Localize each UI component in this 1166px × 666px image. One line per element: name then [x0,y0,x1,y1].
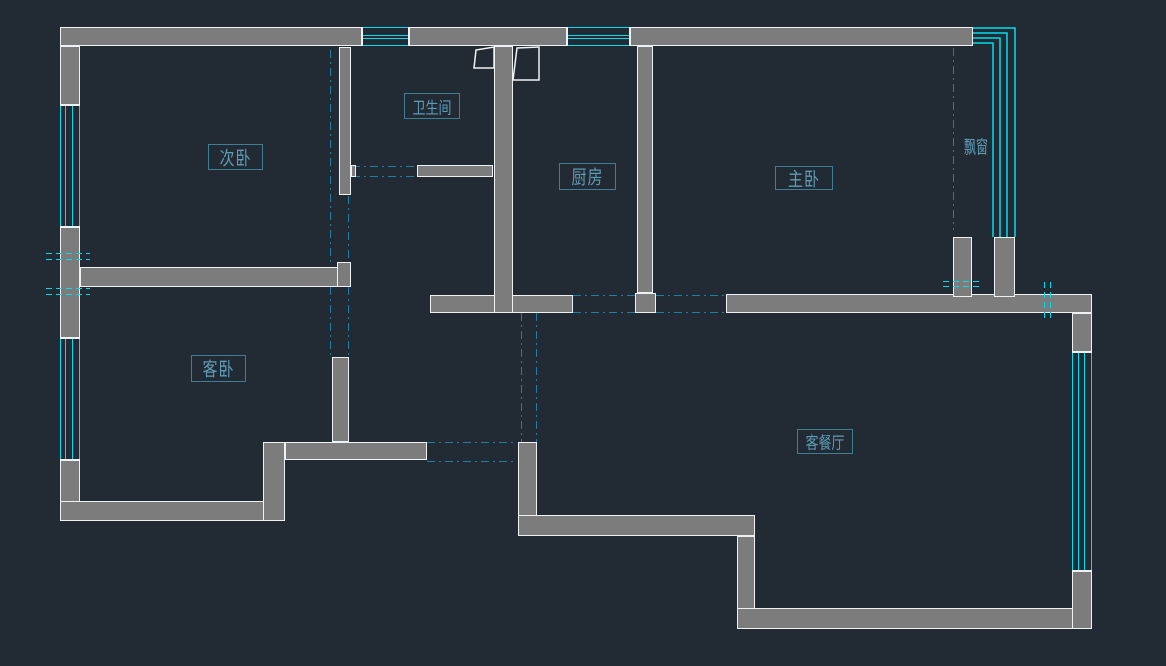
room-label-text: 客卧 [202,355,234,381]
room-label-second-bedroom: 次卧 [208,144,263,170]
room-label-text: 主卧 [788,165,820,191]
annotation-text: 飘窗 [964,133,988,159]
room-label-bathroom: 卫生间 [404,93,460,119]
floor-plan-canvas: 次卧 卫生间 厨房 主卧 客卧 客餐厅 飘窗 [0,0,1166,666]
room-label-kitchen: 厨房 [559,163,616,190]
room-label-text: 次卧 [219,144,251,170]
room-label-text: 厨房 [571,163,603,189]
room-label-text: 卫生间 [412,94,451,118]
room-label-guest-bedroom: 客卧 [191,355,246,382]
casement-window-symbol [474,47,494,68]
room-label-master-bedroom: 主卧 [775,166,833,190]
annotation-bay-window: 飘窗 [959,133,993,159]
room-label-living-dining: 客餐厅 [797,429,853,454]
room-label-text: 客餐厅 [805,430,844,454]
casement-window-symbol [513,47,539,80]
symbol-layer [0,0,1166,666]
